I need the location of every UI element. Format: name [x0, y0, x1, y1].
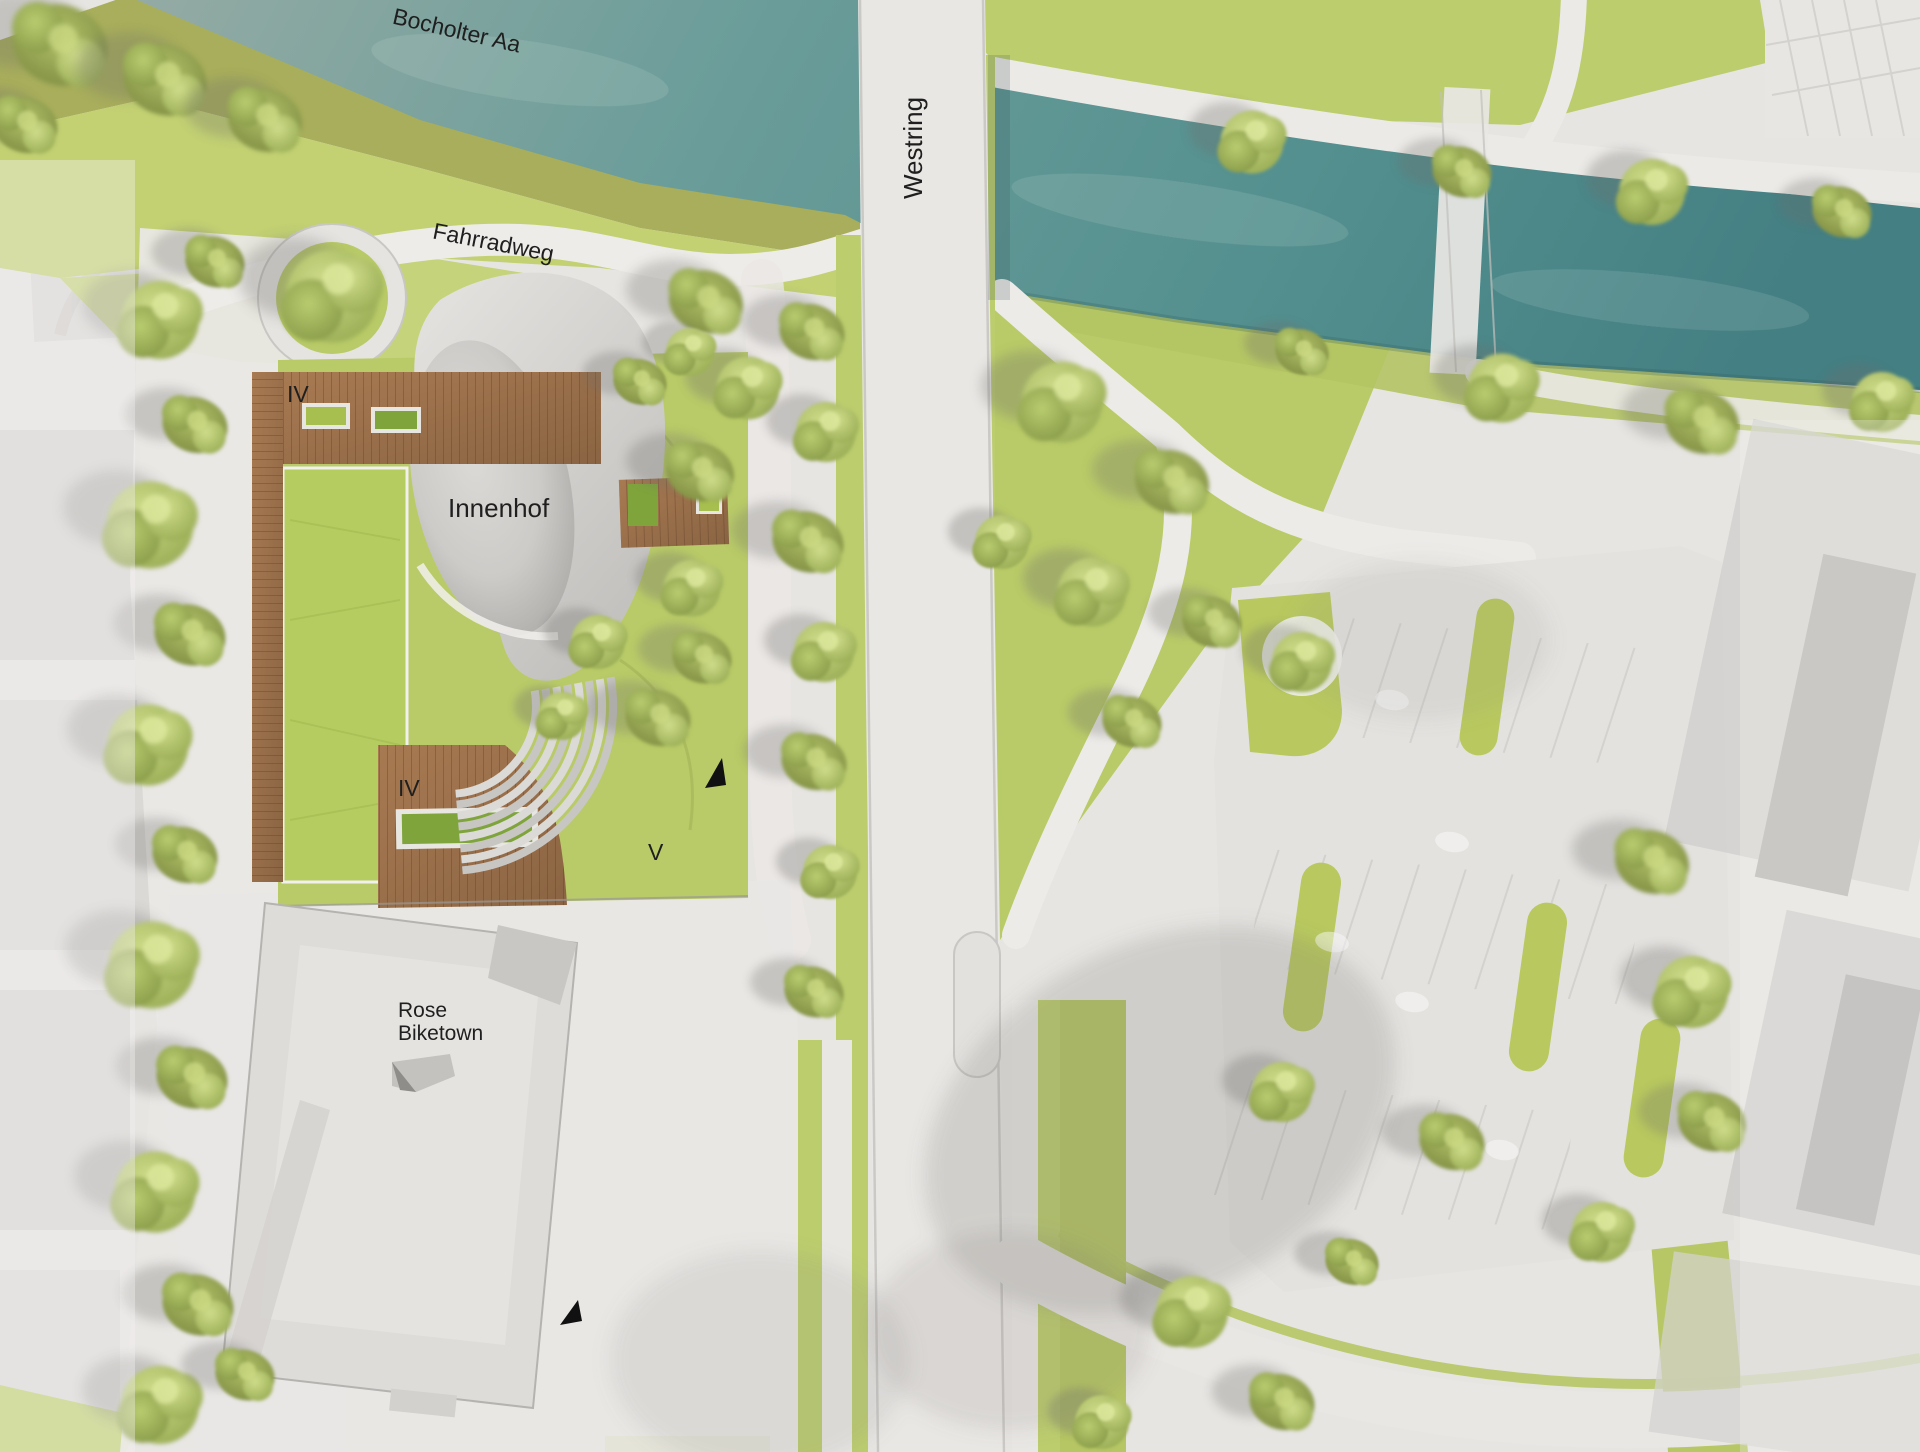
east-fade	[1740, 420, 1920, 1452]
courtyard-label: Innenhof	[448, 493, 550, 523]
paved-corner-northeast	[1765, 0, 1920, 138]
floors-label-roof: IV	[287, 381, 309, 407]
building-label-line2: Biketown	[398, 1022, 483, 1045]
street-label-westring: Westring	[898, 97, 928, 199]
building-label-line1: Rose	[398, 999, 447, 1022]
rose-biketown-building	[222, 903, 577, 1417]
floors-label-deck: IV	[398, 775, 420, 801]
site-plan: Bocholter Aa Westring Fahrradweg IV Inne…	[0, 0, 1920, 1452]
west-fade	[0, 160, 135, 1452]
floors-label-v: V	[648, 839, 664, 865]
wood-deck-upper	[283, 372, 601, 464]
